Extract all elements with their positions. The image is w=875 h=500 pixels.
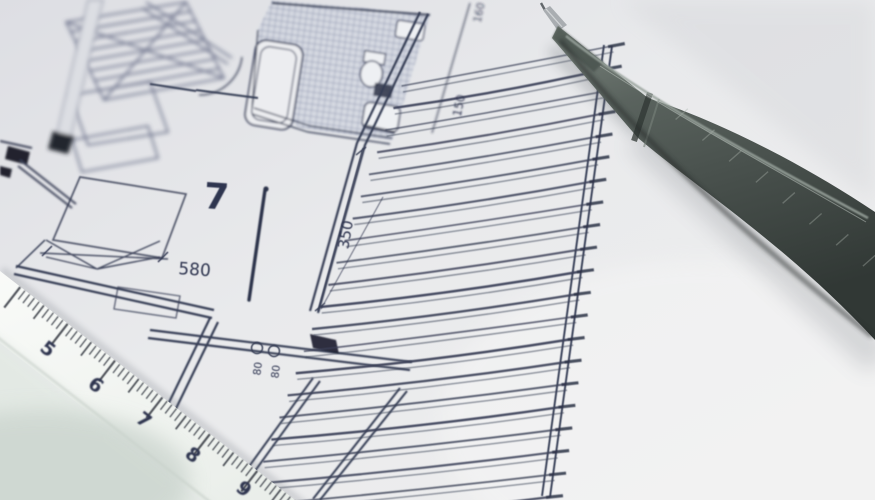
blueprint-photo: 7 580 350 80 80 150 160 5 6 7 8 9 xyxy=(0,0,875,500)
deck-board-end xyxy=(568,338,585,340)
room-number: 7 xyxy=(202,176,230,219)
dim-580: 580 xyxy=(178,259,212,281)
deck-board-end xyxy=(562,383,579,385)
deck-board-end xyxy=(546,496,563,498)
deck-board-end xyxy=(565,360,582,362)
dim-80-b: 80 xyxy=(269,364,283,379)
photo-canvas: 7 580 350 80 80 150 160 5 6 7 8 9 xyxy=(0,0,875,500)
deck-board-end xyxy=(555,428,572,430)
deck-board-end xyxy=(549,473,566,475)
deck-board-end xyxy=(574,292,591,294)
deck-board-end xyxy=(552,451,569,453)
dim-80-a: 80 xyxy=(251,361,265,376)
deck-board-end xyxy=(571,315,588,317)
deck-board-end xyxy=(558,405,575,407)
